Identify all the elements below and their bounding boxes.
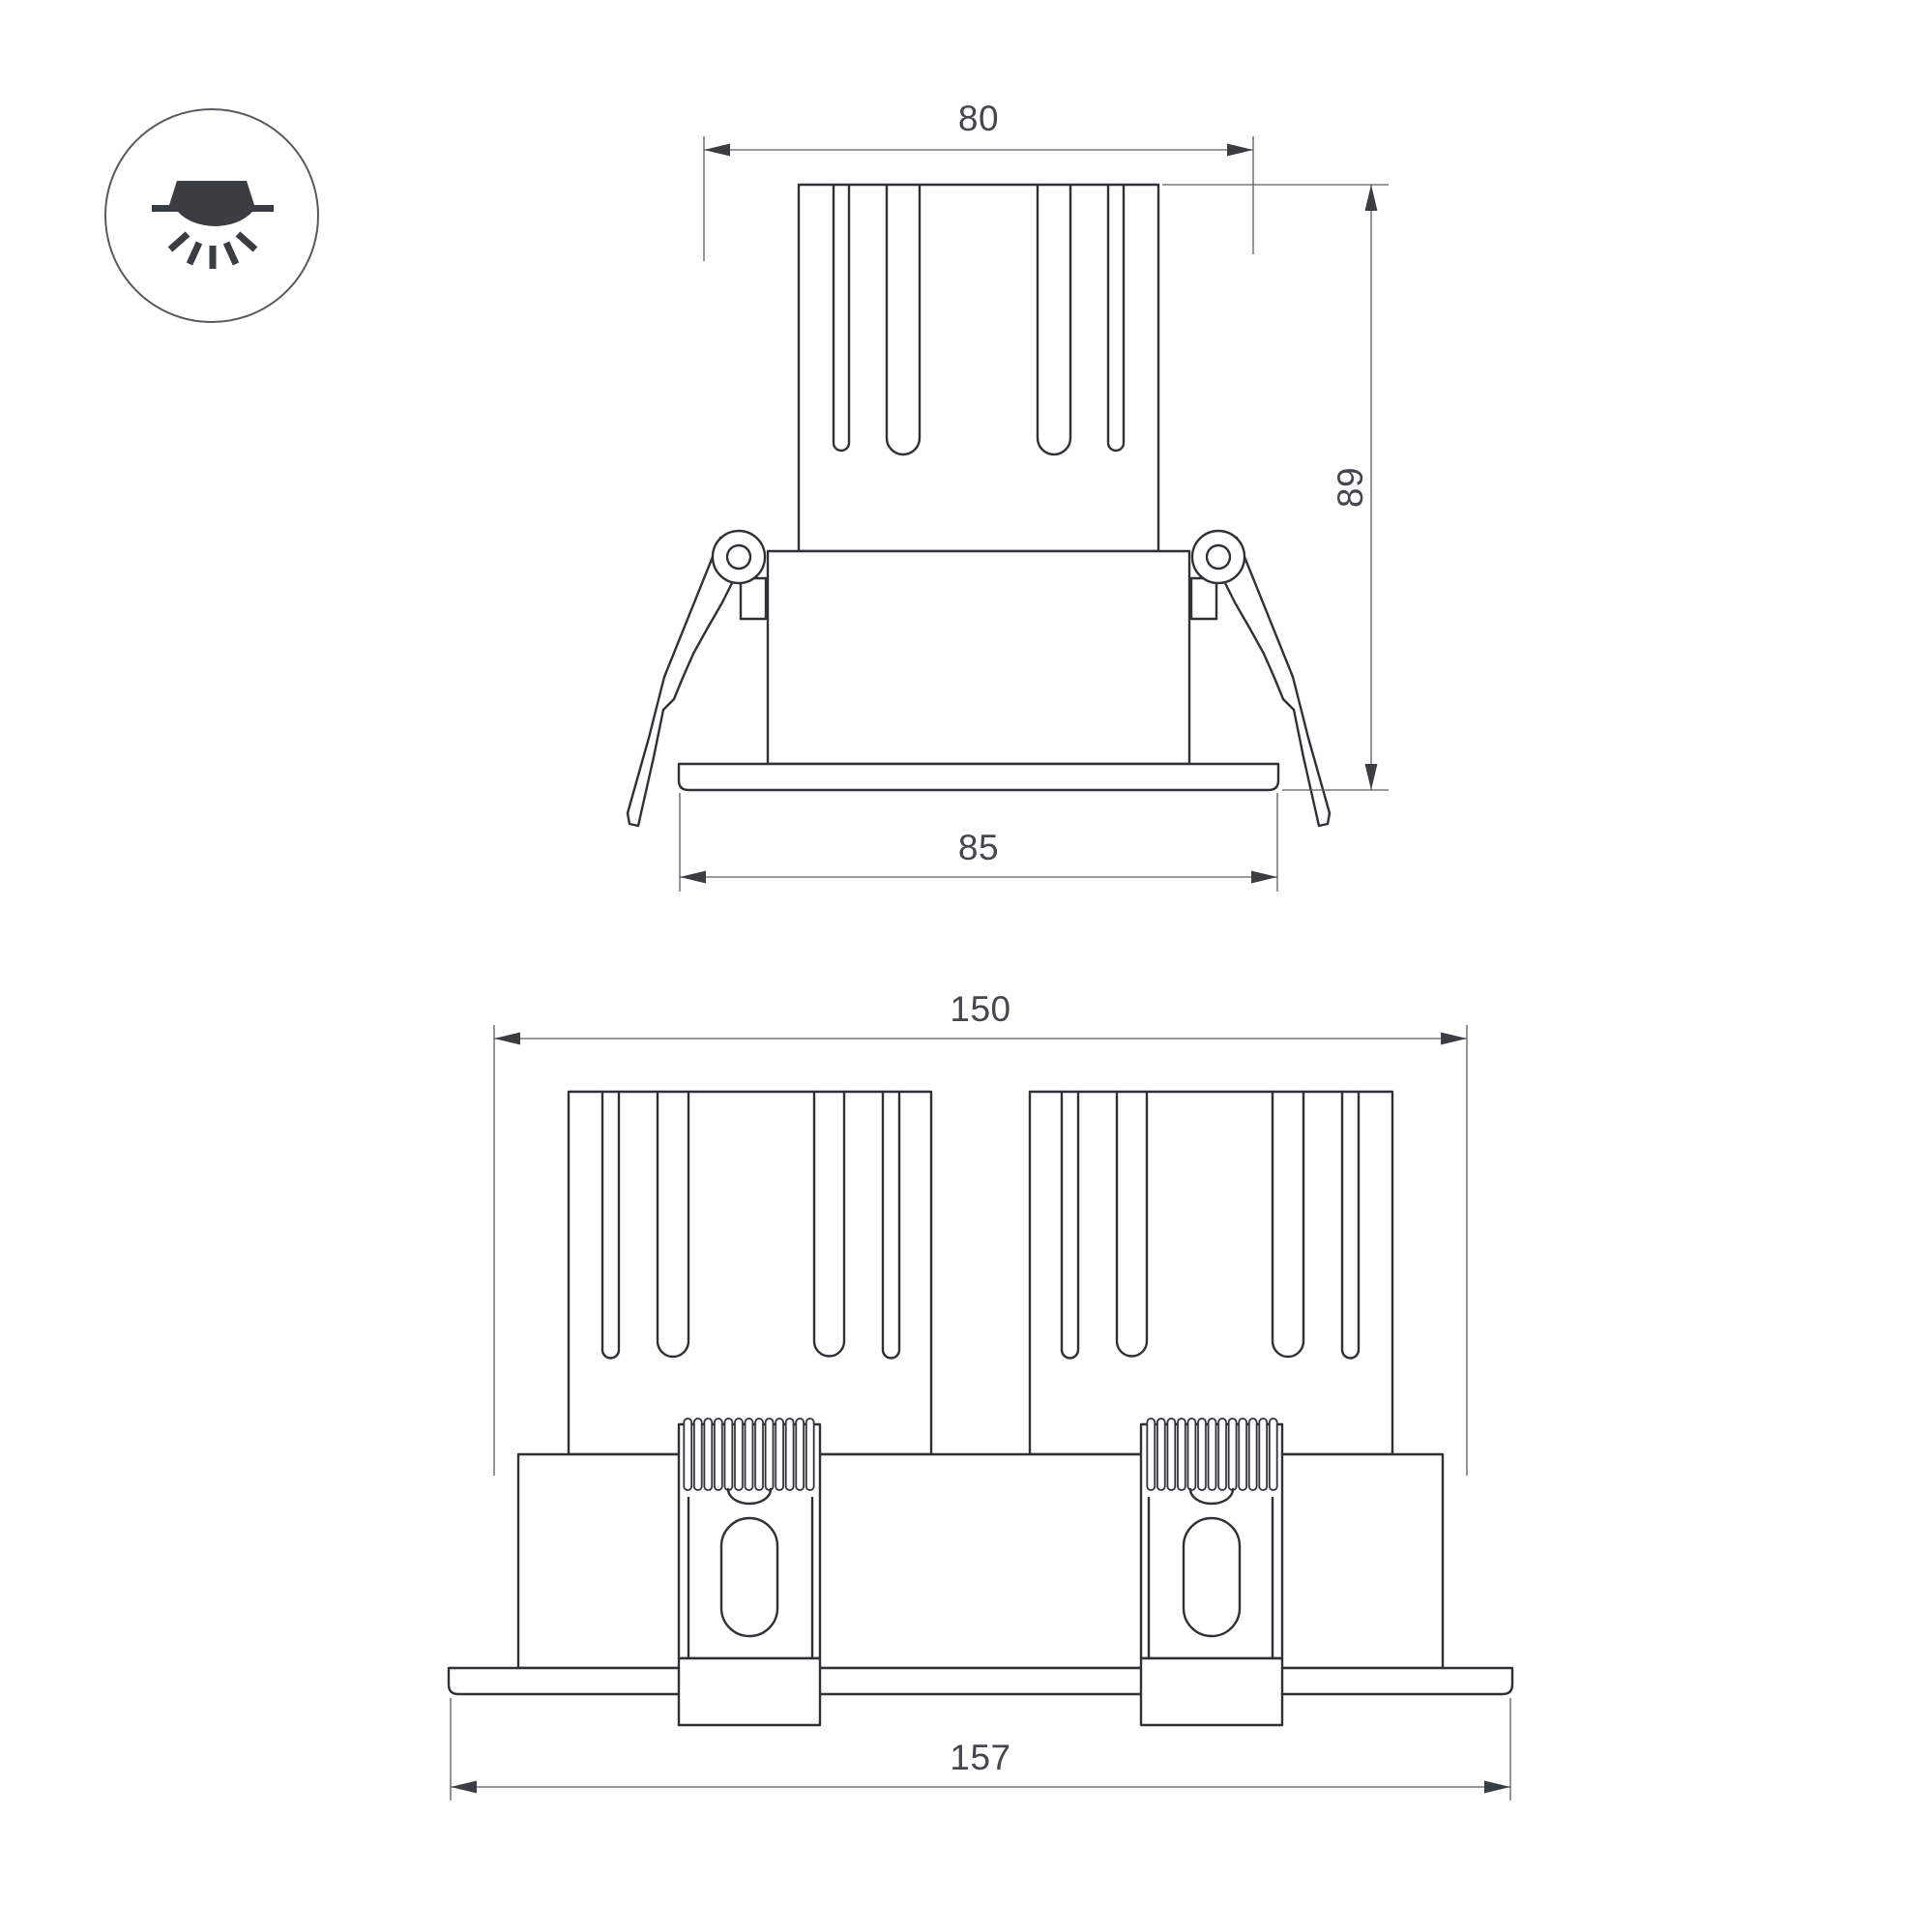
- trim-flange: [679, 764, 1278, 790]
- clip-pivot: [713, 531, 765, 583]
- clip-pivot: [1192, 531, 1244, 583]
- clip-catch-tab: [1191, 578, 1216, 619]
- flange-width-label: 157: [950, 1738, 1010, 1777]
- heatsink-body: [799, 185, 1158, 551]
- heatsink-left: [569, 1092, 931, 1454]
- cutout-width-label: 80: [958, 99, 999, 138]
- trim-flange: [449, 1668, 1512, 1694]
- dimension-flange-width-157: 157: [451, 1698, 1510, 1800]
- icon-fixture-body: [169, 181, 254, 205]
- dimension-height-89: 89: [1162, 185, 1389, 790]
- housing-body: [518, 1454, 1443, 1668]
- technical-drawing-canvas: 80 89 85: [0, 0, 1932, 1932]
- icon-fixture-flange: [152, 205, 274, 212]
- housing-body: [768, 551, 1189, 764]
- heatsink-right: [1030, 1092, 1392, 1454]
- recessed-downlight-icon: [105, 109, 318, 322]
- mounting-bracket-right: [1141, 1418, 1282, 1725]
- flange-width-label: 85: [958, 828, 999, 867]
- cutout-width-label: 150: [950, 989, 1010, 1029]
- mounting-bracket-left: [679, 1418, 820, 1725]
- single-luminaire-view: 80 89 85: [628, 99, 1389, 892]
- clip-catch-tab: [741, 578, 766, 619]
- height-label: 89: [1331, 467, 1370, 508]
- double-luminaire-view: 150 157: [449, 989, 1512, 1800]
- dimension-flange-width-85: 85: [680, 793, 1277, 892]
